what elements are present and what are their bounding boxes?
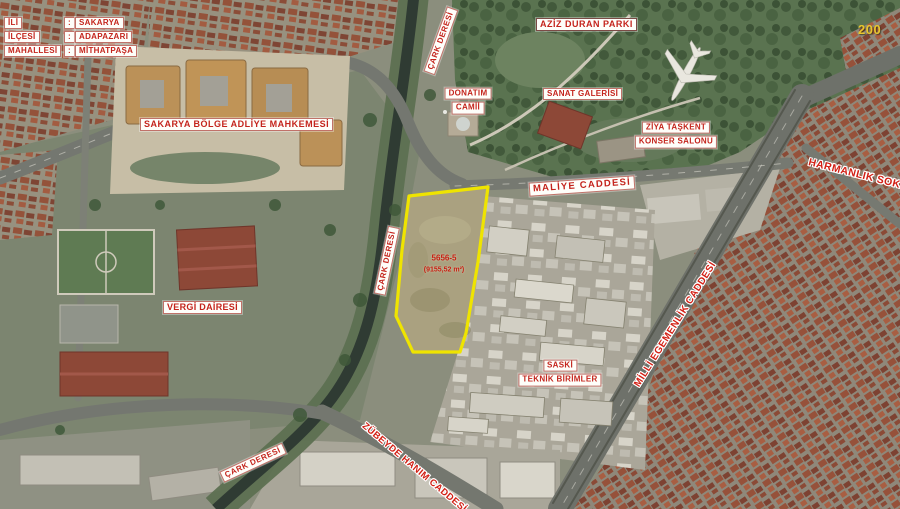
colon-separator: : (64, 45, 75, 57)
mosque-label-line2: CAMİİ (452, 102, 484, 114)
colon-separator: : (64, 31, 75, 43)
colon-separator: : (64, 17, 75, 29)
mosque-label: DONATIM CAMİİ (445, 88, 492, 115)
neighborhood-value: MİTHATPAŞA (75, 45, 137, 57)
parcel-number: 5656-5 (432, 254, 457, 263)
art-gallery-label: SANAT GALERİSİ (543, 88, 622, 100)
district-label: İLÇESİ (4, 31, 40, 43)
saski-label-line1: SASKİ (543, 360, 577, 372)
concert-hall-label: ZİYA TAŞKENT KONSER SALONU (635, 122, 717, 149)
courthouse-label: SAKARYA BÖLGE ADLİYE MAHKEMESİ (140, 118, 333, 131)
neighborhood-label: MAHALLESİ (4, 45, 61, 57)
concert-hall-label-line1: ZİYA TAŞKENT (642, 122, 710, 134)
province-label: İLİ (4, 17, 22, 29)
tax-office-building (176, 226, 257, 290)
tax-office-label: VERGİ DAİRESİ (163, 301, 242, 314)
district-value: ADAPAZARI (75, 31, 132, 43)
aerial-map: İLİ : SAKARYA İLÇESİ : ADAPAZARI MAHALLE… (0, 0, 900, 509)
saski-label: SASKİ TEKNİK BİRİMLER (518, 360, 601, 387)
parcel-area: (9155,52 m²) (424, 267, 464, 274)
mosque-label-line1: DONATIM (445, 88, 492, 100)
year-watermark: 200 (858, 22, 881, 37)
saski-label-line2: TEKNİK BİRİMLER (518, 374, 601, 386)
province-value: SAKARYA (75, 17, 124, 29)
park-label: AZİZ DURAN PARKI (536, 18, 637, 31)
concert-hall-label-line2: KONSER SALONU (635, 136, 717, 148)
